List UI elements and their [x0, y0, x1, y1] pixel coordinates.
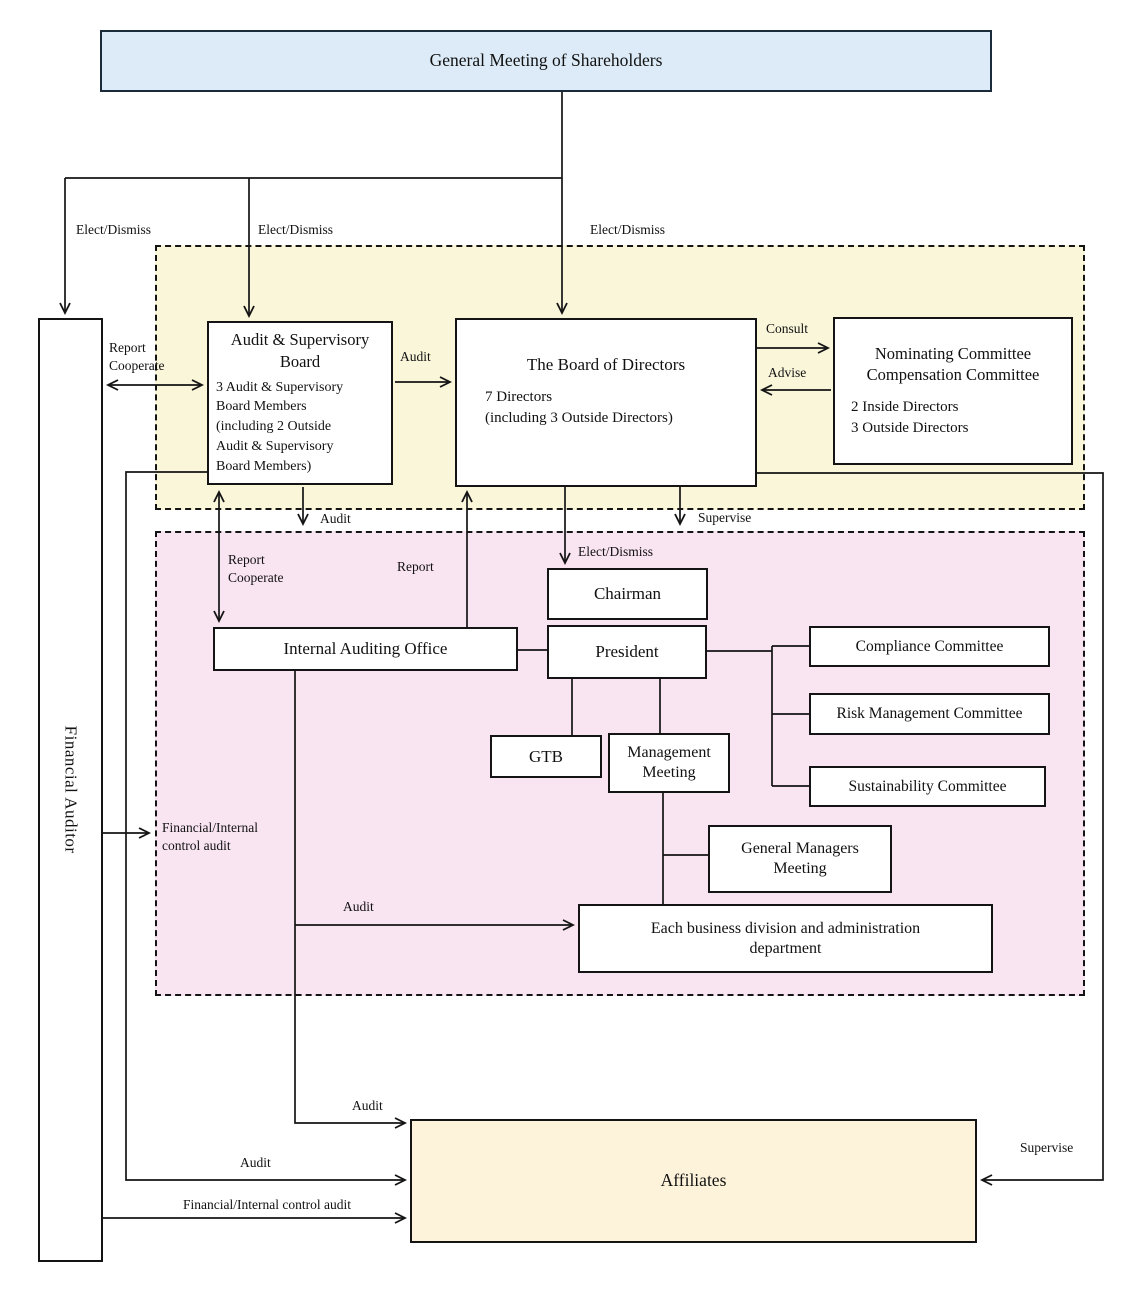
- label-financial-internal-audit-affiliates: Financial/Internal control audit: [183, 1196, 351, 1214]
- label-elect-dismiss-chairman: Elect/Dismiss: [578, 543, 653, 561]
- management-meeting-label: Management Meeting: [627, 743, 711, 783]
- audit-supervisory-board-box: Audit & Supervisory Board 3 Audit & Supe…: [207, 321, 393, 485]
- gms-label: General Meeting of Shareholders: [430, 50, 663, 72]
- nominating-compensation-committee-box: Nominating Committee Compensation Commit…: [833, 317, 1073, 465]
- president-label: President: [595, 641, 658, 662]
- label-report-iao-bod: Report: [397, 558, 434, 576]
- chairman-label: Chairman: [594, 583, 661, 604]
- gtb-box: GTB: [490, 735, 602, 778]
- label-elect-dismiss-bod: Elect/Dismiss: [590, 221, 665, 239]
- financial-auditor-label: Financial Auditor: [60, 726, 81, 854]
- asb-members: 3 Audit & Supervisory Board Members (inc…: [216, 378, 384, 477]
- label-elect-dismiss-asb: Elect/Dismiss: [258, 221, 333, 239]
- affiliates-box: Affiliates: [410, 1119, 977, 1243]
- business-division-label: Each business division and administratio…: [651, 919, 920, 959]
- sustainability-committee-label: Sustainability Committee: [848, 777, 1006, 796]
- label-audit-asb-affiliates: Audit: [240, 1154, 271, 1172]
- compliance-committee-label: Compliance Committee: [856, 637, 1004, 656]
- risk-management-committee-box: Risk Management Committee: [809, 693, 1050, 735]
- president-box: President: [547, 625, 707, 679]
- governance-structure-diagram: General Meeting of Shareholders Financia…: [0, 0, 1139, 1307]
- management-meeting-box: Management Meeting: [608, 733, 730, 793]
- nomcomp-members: 2 Inside Directors 3 Outside Directors: [835, 397, 1071, 439]
- label-supervise-bod-down: Supervise: [698, 509, 751, 527]
- risk-management-committee-label: Risk Management Committee: [837, 704, 1023, 723]
- business-division-box: Each business division and administratio…: [578, 904, 993, 973]
- gtb-label: GTB: [529, 746, 563, 767]
- label-consult: Consult: [766, 320, 808, 338]
- label-report-cooperate-iao: Report Cooperate: [228, 551, 283, 587]
- bod-members: 7 Directors (including 3 Outside Directo…: [457, 387, 755, 429]
- affiliates-label: Affiliates: [661, 1170, 727, 1192]
- internal-auditing-office-box: Internal Auditing Office: [213, 627, 518, 671]
- edge-iao-audit-affiliates: [295, 671, 405, 1123]
- financial-auditor-box: Financial Auditor: [38, 318, 103, 1262]
- edge-mgmt-meeting-down: [663, 793, 708, 904]
- sustainability-committee-box: Sustainability Committee: [809, 766, 1046, 807]
- label-advise: Advise: [768, 364, 806, 382]
- iao-label: Internal Auditing Office: [284, 638, 448, 659]
- asb-title: Audit & Supervisory Board: [216, 329, 384, 374]
- compliance-committee-box: Compliance Committee: [809, 626, 1050, 667]
- nomcomp-title: Nominating Committee Compensation Commit…: [867, 343, 1040, 386]
- label-elect-dismiss-fa: Elect/Dismiss: [76, 221, 151, 239]
- label-audit-iao-ebd: Audit: [343, 898, 374, 916]
- general-managers-meeting-label: General Managers Meeting: [741, 839, 859, 879]
- general-meeting-of-shareholders-box: General Meeting of Shareholders: [100, 30, 992, 92]
- general-managers-meeting-box: General Managers Meeting: [708, 825, 892, 893]
- label-supervise-affiliates: Supervise: [1020, 1139, 1073, 1157]
- label-audit-iao-affiliates: Audit: [352, 1097, 383, 1115]
- board-of-directors-box: The Board of Directors 7 Directors (incl…: [455, 318, 757, 487]
- chairman-box: Chairman: [547, 568, 708, 620]
- label-audit-asb-down: Audit: [320, 510, 351, 528]
- label-report-cooperate-fa: Report Cooperate: [109, 339, 164, 375]
- bod-title: The Board of Directors: [527, 354, 685, 375]
- label-financial-internal-audit: Financial/Internal control audit: [162, 819, 258, 855]
- label-audit-asb-bod: Audit: [400, 348, 431, 366]
